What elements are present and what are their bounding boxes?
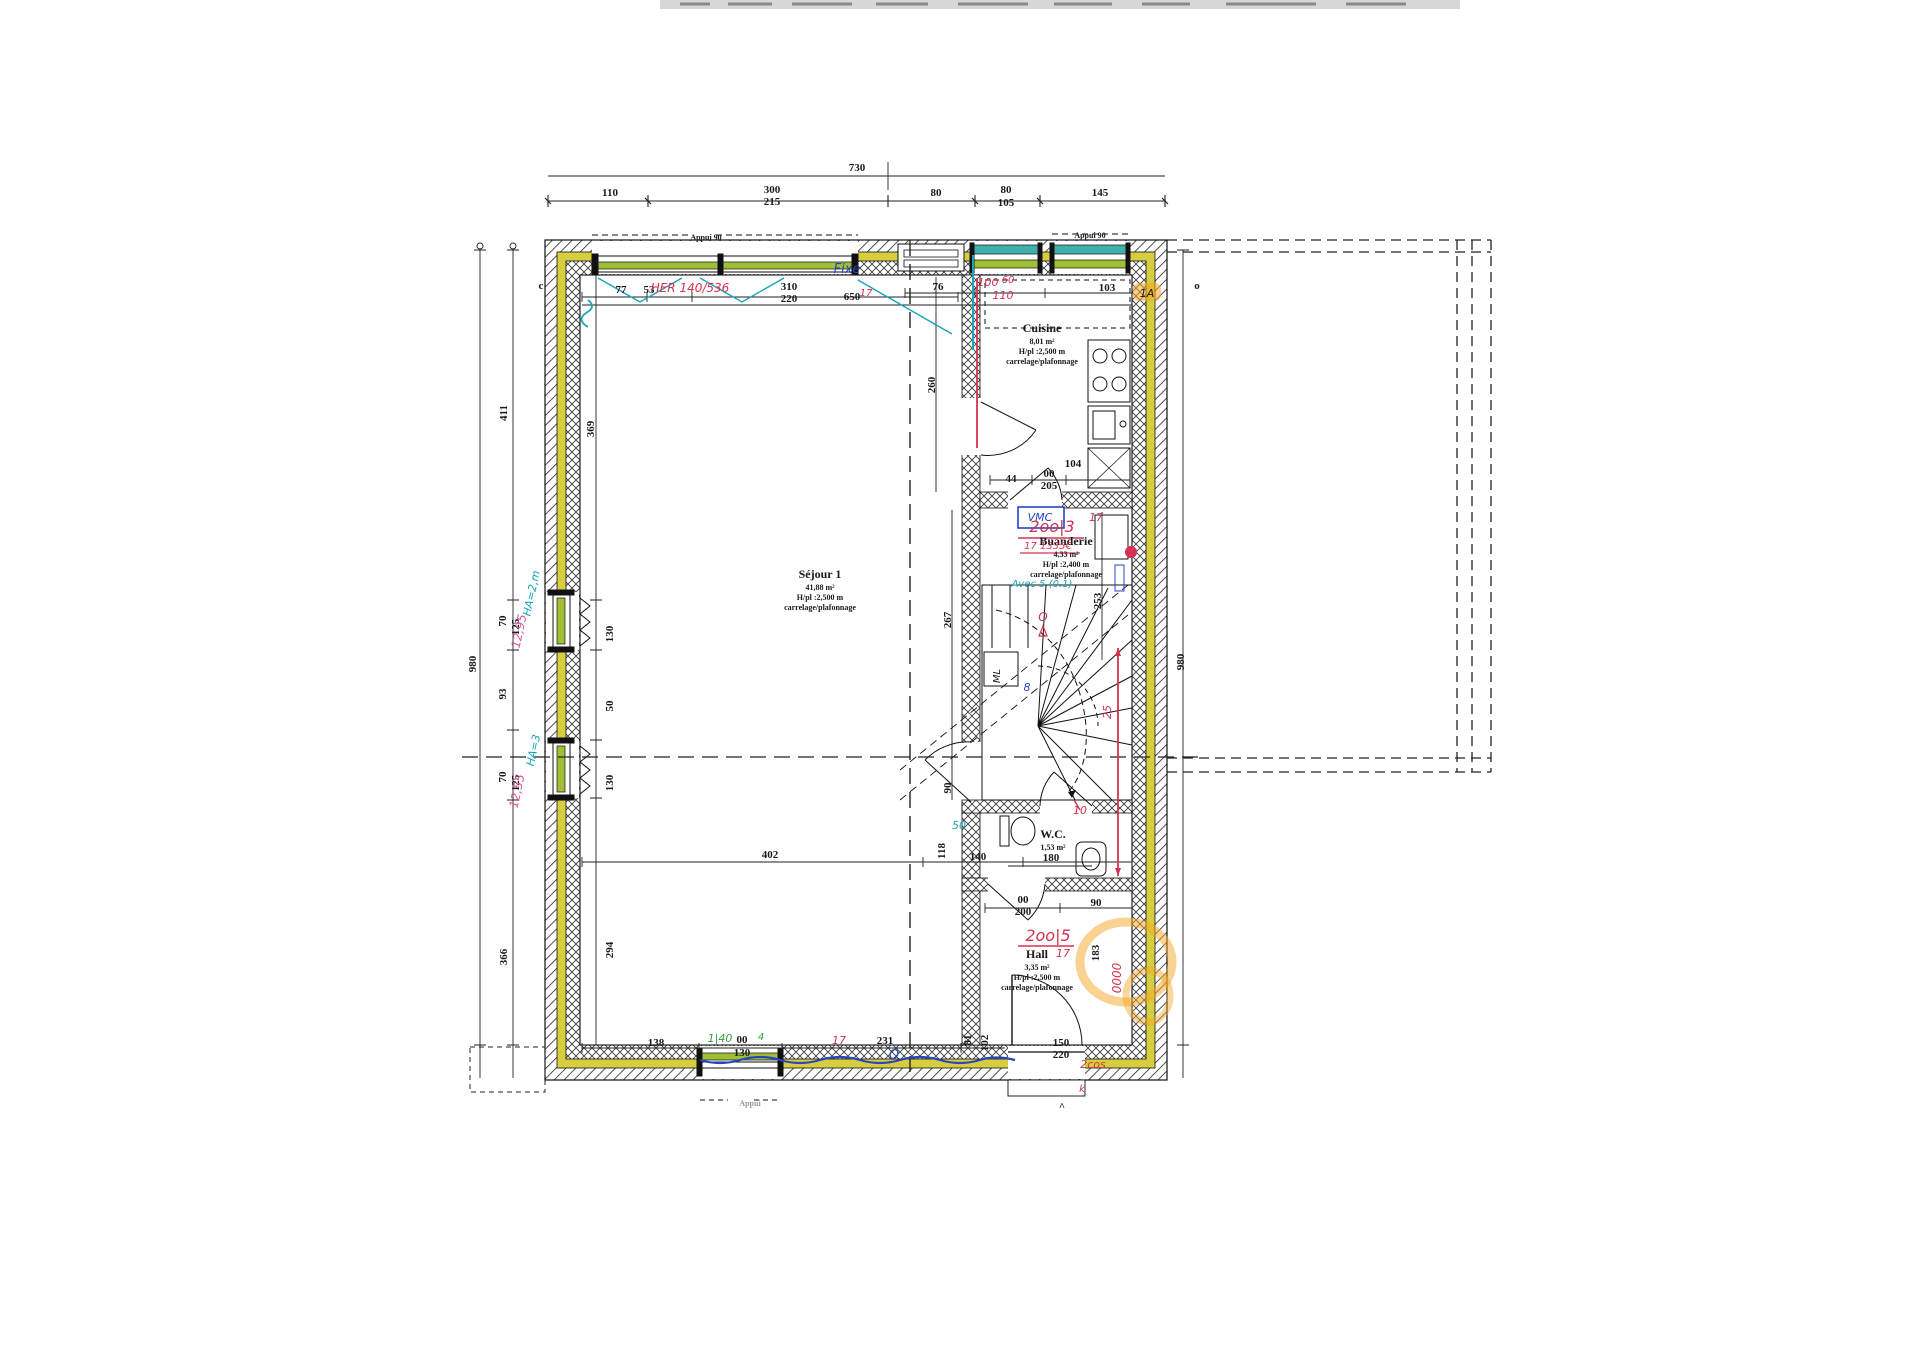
dim-label: 118	[936, 843, 948, 859]
dim-label: Appui 90	[690, 233, 721, 242]
room-detail: 3,35 m²	[1024, 963, 1050, 972]
annotation-red: HER 140/536	[651, 281, 730, 295]
dim-label: 70	[497, 771, 509, 783]
dim-label: 300	[764, 184, 781, 196]
dim-label: 50	[604, 700, 616, 712]
scanned-floorplan-page: 7301103002158080105145980411701259370125…	[0, 0, 1920, 1358]
dim-label: c	[539, 280, 544, 292]
room-name: Séjour 1	[799, 567, 842, 581]
dim-label: 980	[467, 655, 479, 672]
dim-label: 369	[585, 420, 597, 437]
dim-label: 70	[497, 615, 509, 627]
annotation-red: 2cos	[1080, 1058, 1106, 1071]
dim-label: 980	[1175, 653, 1187, 670]
dim-label: 411	[498, 405, 510, 421]
window-fixe-box	[898, 244, 964, 271]
dim-label: 104	[1065, 458, 1082, 470]
dim-label: 105	[998, 197, 1015, 209]
dim-label: 102	[979, 1034, 991, 1051]
annotation-red: 100	[978, 276, 999, 289]
dim-label: 650	[844, 291, 861, 303]
dim-label: Appui	[739, 1099, 761, 1108]
annotation-pink: 12,95	[509, 613, 530, 650]
dim-label: 150	[1053, 1037, 1070, 1049]
annotation-red: 10	[1073, 804, 1087, 817]
window-cuisine-1	[970, 241, 1042, 274]
room-name: Cuisine	[1023, 321, 1062, 335]
annotation-blue: O	[889, 1048, 899, 1063]
annotation-blue: VMC	[1028, 511, 1053, 524]
dim-label: 110	[602, 187, 618, 199]
dim-label: 00	[737, 1034, 749, 1046]
room-detail: H/pl :2,500 m	[797, 593, 844, 602]
dim-label: 310	[781, 281, 798, 293]
room-detail: H/pl :2,500 m	[1019, 347, 1066, 356]
annotation-red: 17	[832, 1034, 846, 1047]
room-detail: carrelage/plafonnage	[784, 603, 856, 612]
dim-label: 215	[764, 196, 781, 208]
room-detail: H/pl :2,400 m	[1043, 560, 1090, 569]
annotation-blue: Fixe	[834, 262, 861, 277]
room-detail: 1,53 m²	[1040, 843, 1066, 852]
annotation-teal: Avec 5 (0.1)	[1011, 579, 1073, 590]
scan-artifact-strip	[660, 0, 1460, 9]
dim-label: 80	[1001, 184, 1013, 196]
dim-label: 267	[942, 611, 954, 628]
room-detail: carrelage/plafonnage	[1001, 983, 1073, 992]
annotation-dark: 1A	[1140, 287, 1155, 300]
dim-label: 130	[604, 625, 616, 642]
dim-label: 200	[1015, 906, 1032, 918]
door-gap-cuisine	[961, 398, 981, 455]
dim-label: 00	[1018, 894, 1030, 906]
exterior-walls	[545, 240, 1167, 1080]
dim-label: o	[1194, 280, 1200, 292]
dim-label: 90	[1091, 897, 1103, 909]
room-detail: 41,88 m²	[805, 583, 835, 592]
room-detail: carrelage/plafonnage	[1030, 570, 1102, 579]
annotation-teal: 50	[952, 819, 966, 832]
dim-label: 220	[781, 293, 798, 305]
room-name: Hall	[1026, 947, 1049, 961]
annotation-red: 110	[993, 289, 1014, 302]
annotation-red: 60	[1002, 275, 1015, 286]
annotation-teal: HA=3	[524, 733, 543, 767]
dim-label: 205	[1041, 480, 1058, 492]
dim-label: 140	[970, 851, 987, 863]
dim-label: 730	[849, 162, 866, 174]
dim-label: 76	[933, 281, 945, 293]
dim-label: 93	[497, 688, 509, 700]
annotation-teal: HA=2,m	[520, 569, 542, 617]
dim-label: 00	[1044, 468, 1056, 480]
annotation-red: O	[1038, 610, 1047, 624]
dim-label: 183	[1090, 944, 1102, 961]
door-gap-hall	[988, 877, 1045, 892]
annotation-dark: ML	[992, 669, 1003, 683]
dim-label: 402	[762, 849, 779, 861]
dim-label: 44	[1006, 473, 1018, 485]
room-name: W.C.	[1040, 827, 1066, 841]
annotation-red: 17	[1089, 511, 1103, 524]
dim-label: 130	[604, 774, 616, 791]
dim-label: 77	[616, 284, 628, 296]
door-gap-sejour	[961, 742, 981, 802]
dim-label: 180	[1043, 852, 1060, 864]
room-detail: H/pl :2,500 m	[1014, 973, 1061, 982]
annotation-red: 17	[860, 288, 873, 299]
dim-label: 130	[734, 1047, 751, 1059]
future-annex-dashed	[1167, 240, 1491, 772]
dim-label: 138	[648, 1037, 665, 1049]
annotation-green: 1|40	[708, 1032, 733, 1045]
annotation-red: 17 1335€	[1024, 541, 1072, 552]
annotation-red: 17	[1056, 947, 1070, 960]
dim-label: 90	[942, 782, 954, 794]
annotation-red: 0000	[1110, 962, 1124, 993]
dim-label: 103	[1099, 282, 1116, 294]
annotation-blue: 8	[1024, 681, 1031, 694]
dim-label: 294	[604, 941, 616, 958]
dim-label: 220	[1053, 1049, 1070, 1061]
dim-label: ^	[1059, 1101, 1065, 1113]
dim-label: 260	[926, 376, 938, 393]
door-step	[1008, 1080, 1085, 1096]
dim-label: 145	[1092, 187, 1109, 199]
dim-label: 231	[877, 1035, 894, 1047]
annotation-green: 4	[758, 1032, 764, 1043]
annotation-red: 25	[1101, 705, 1114, 719]
red-dot-mark	[1125, 546, 1137, 558]
dim-label: 253	[1092, 592, 1104, 609]
dim-label: 80	[931, 187, 943, 199]
dim-label: Appui 90	[1074, 231, 1105, 240]
room-detail: carrelage/plafonnage	[1006, 357, 1078, 366]
room-detail: 8,01 m²	[1029, 337, 1055, 346]
dim-label: 81	[962, 1035, 974, 1046]
floor-plan-canvas: 7301103002158080105145980411701259370125…	[0, 0, 1920, 1358]
wall-wc-hall	[962, 878, 1132, 891]
dim-label: 366	[498, 948, 510, 965]
annotation-red: 2oo|5	[1025, 926, 1070, 945]
